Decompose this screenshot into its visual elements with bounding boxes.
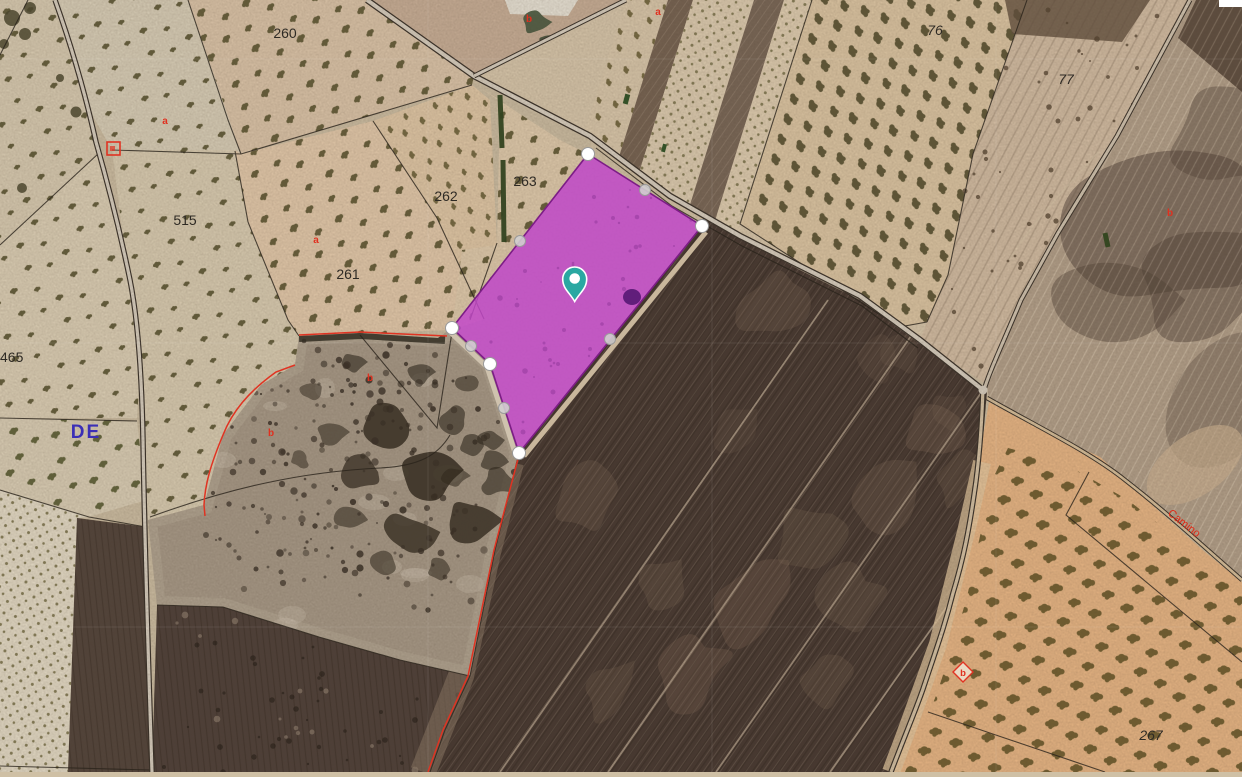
svg-text:a: a	[313, 235, 319, 246]
svg-text:DE: DE	[71, 422, 101, 443]
svg-text:261: 261	[336, 266, 360, 282]
svg-text:b: b	[526, 14, 532, 25]
svg-text:267: 267	[1138, 727, 1164, 743]
svg-text:b: b	[268, 428, 274, 439]
svg-text:262: 262	[434, 188, 458, 204]
svg-text:465: 465	[0, 349, 24, 365]
svg-text:260: 260	[273, 25, 297, 41]
svg-text:263: 263	[513, 173, 537, 189]
svg-text:515: 515	[173, 212, 197, 228]
svg-text:a: a	[162, 116, 168, 127]
svg-text:77: 77	[1058, 71, 1075, 87]
svg-text:b: b	[1167, 208, 1173, 219]
svg-text:a: a	[655, 7, 661, 18]
svg-text:76: 76	[927, 22, 943, 38]
svg-text:b: b	[960, 668, 966, 679]
svg-text:b: b	[367, 373, 373, 384]
